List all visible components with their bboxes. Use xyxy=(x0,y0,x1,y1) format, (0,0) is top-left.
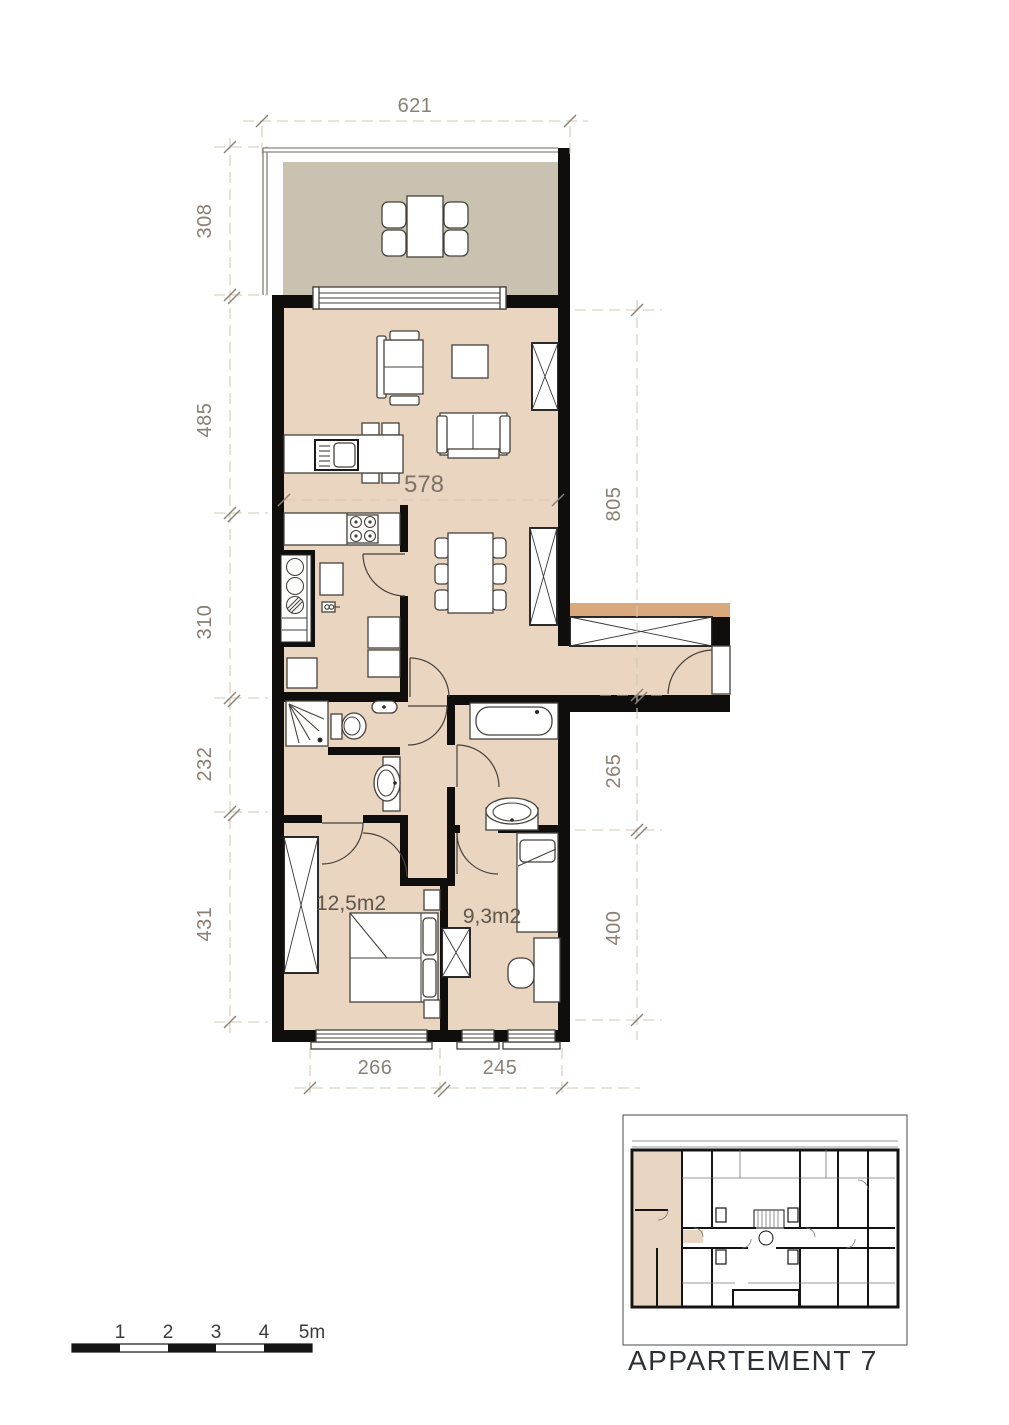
window xyxy=(503,1030,560,1049)
scale-label-4: 4 xyxy=(259,1322,270,1343)
dim-right-0: 805 xyxy=(603,487,625,522)
bedroom1-area-label: 12,5m2 xyxy=(316,892,386,915)
scale-label-2: 2 xyxy=(163,1322,174,1343)
chair xyxy=(435,538,449,558)
cabinet xyxy=(368,650,400,677)
sink-bowl xyxy=(334,443,355,467)
scale-label-1: 1 xyxy=(115,1322,126,1343)
scale-label-3: 3 xyxy=(211,1322,222,1343)
sofa-two-seat xyxy=(377,331,423,405)
dim-left-3: 232 xyxy=(194,747,216,782)
dim-top: 621 xyxy=(398,95,433,117)
kitchen-counter xyxy=(284,513,400,545)
chair xyxy=(444,230,468,256)
table xyxy=(407,196,443,257)
cabinet xyxy=(287,658,317,688)
scale-label-5m: 5m xyxy=(299,1322,325,1343)
chair xyxy=(435,564,449,584)
corridor-band xyxy=(570,603,730,617)
entry-hall-floor xyxy=(558,646,730,695)
hand-basin xyxy=(372,701,397,713)
window xyxy=(311,1030,432,1049)
chair xyxy=(492,564,506,584)
toilet xyxy=(331,713,366,739)
dim-left-0: 308 xyxy=(194,204,216,239)
wardrobe-dining xyxy=(530,528,557,625)
wardrobe-living xyxy=(532,343,558,410)
single-bed xyxy=(517,833,558,932)
overview-caption: APPARTEMENT 7 xyxy=(628,1345,878,1376)
kitchen-cabinet xyxy=(320,563,343,595)
scale-bar: 1 2 3 4 5m xyxy=(72,1322,325,1352)
dim-right-1: 265 xyxy=(603,754,625,789)
pillow xyxy=(423,959,436,997)
sofa-two-seat-2 xyxy=(437,413,510,458)
utility-column xyxy=(273,550,315,647)
chair xyxy=(382,202,406,228)
entry-closet xyxy=(570,617,712,646)
bathtub xyxy=(470,703,558,739)
nightstand xyxy=(424,890,440,910)
overview-plan xyxy=(623,1115,907,1345)
dim-left-4: 431 xyxy=(194,907,216,942)
shower xyxy=(286,701,328,746)
side-table xyxy=(452,345,488,378)
chair xyxy=(382,230,406,256)
washbasin-bath xyxy=(486,798,538,830)
wardrobe-bedroom1 xyxy=(284,837,318,973)
dim-interior: 578 xyxy=(404,471,444,498)
dining-table xyxy=(448,533,493,613)
bedroom2-area-label: 9,3m2 xyxy=(463,905,521,928)
balcony-dining-set xyxy=(382,196,468,257)
sliding-door xyxy=(313,287,506,309)
dining-set xyxy=(435,533,506,613)
chair xyxy=(492,590,506,610)
dim-bottom-1: 245 xyxy=(483,1057,518,1079)
cabinet xyxy=(368,617,400,648)
dim-right-2: 400 xyxy=(603,911,625,946)
wardrobe-bedroom2 xyxy=(442,928,470,977)
dim-left-2: 310 xyxy=(194,605,216,640)
dim-bottom-0: 266 xyxy=(358,1057,393,1079)
double-bed xyxy=(350,913,438,1002)
desk xyxy=(534,938,560,1002)
floor-plan-page: 621 308 485 310 232 431 80 xyxy=(0,0,1009,1425)
chair xyxy=(492,538,506,558)
nightstand xyxy=(424,1000,440,1018)
dim-left-1: 485 xyxy=(194,403,216,438)
chair xyxy=(435,590,449,610)
desk-chair xyxy=(508,958,534,988)
window xyxy=(457,1030,499,1049)
pillow xyxy=(520,840,555,862)
pillow xyxy=(423,918,436,955)
chair xyxy=(444,202,468,228)
